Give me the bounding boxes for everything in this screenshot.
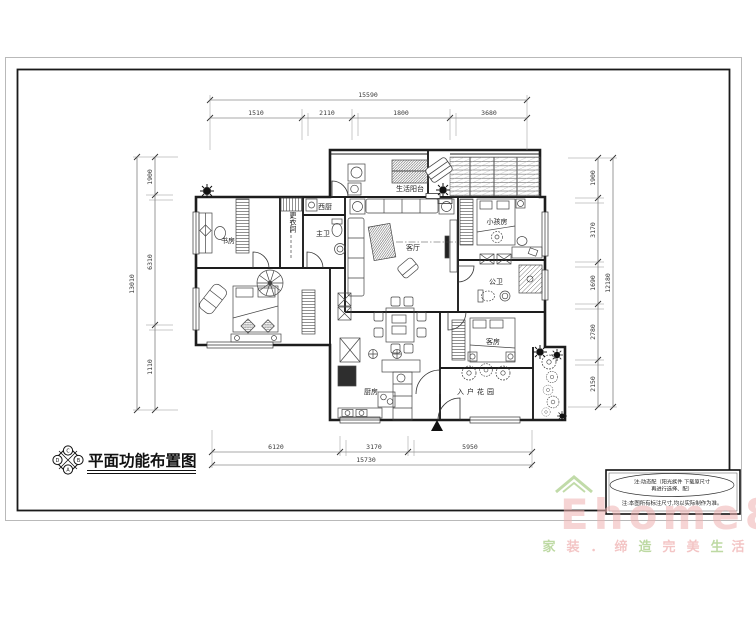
- guest-room: [452, 318, 515, 362]
- label-public-bath: 公卫: [489, 278, 503, 286]
- spiral-stair: [257, 270, 283, 296]
- svg-text:家: 家: [542, 539, 556, 555]
- label-living: 客厅: [406, 243, 420, 252]
- label-kids: 小孩房: [487, 217, 508, 226]
- dim-right-3: 2780: [589, 324, 597, 340]
- brand-tagline: 家 装 ． 缔 造 完 美 生 活: [542, 539, 744, 555]
- dim-right-total: 12180: [604, 273, 612, 293]
- dim-right-2: 1690: [589, 275, 597, 291]
- title-underline: [87, 471, 196, 474]
- compass-letter-right: B: [77, 458, 80, 464]
- title-block: C B A D 平面功能布置图: [53, 446, 197, 474]
- note-oval-line1: 注:动态配（阳光族件 下载原尺寸: [634, 478, 710, 486]
- dim-right-1: 3170: [589, 222, 597, 238]
- dim-bottom-1: 3170: [366, 443, 382, 451]
- label-guest: 客房: [486, 337, 500, 346]
- label-west-kitchen: 西厨: [318, 203, 332, 211]
- kids-room: [460, 199, 542, 264]
- master-bedroom: [197, 282, 315, 342]
- svg-text:．: ．: [590, 540, 603, 555]
- dim-top-3: 3680: [481, 109, 497, 117]
- svg-text:装: 装: [565, 539, 579, 555]
- page-title: 平面功能布置图: [88, 451, 197, 470]
- living-room: [348, 199, 457, 296]
- dim-top-1: 2110: [319, 109, 335, 117]
- label-cloak: 更衣间: [289, 212, 297, 234]
- svg-text:生: 生: [710, 539, 723, 555]
- dim-left-0: 1900: [146, 169, 154, 185]
- dim-top-2: 1800: [393, 109, 409, 117]
- svg-text:造: 造: [638, 539, 652, 555]
- dim-left-total: 13010: [128, 274, 136, 294]
- svg-text:缔: 缔: [614, 539, 627, 555]
- west-kitchen: [306, 199, 317, 211]
- brand-logo-text: Ehome8: [560, 490, 756, 539]
- public-bath: [478, 265, 542, 302]
- svg-text:活: 活: [731, 539, 744, 555]
- label-kitchen: 厨房: [364, 387, 378, 396]
- svg-text:完: 完: [662, 539, 675, 555]
- dim-right-0: 1900: [589, 170, 597, 186]
- svg-text:美: 美: [686, 539, 700, 555]
- dim-bottom-total: 15730: [356, 456, 376, 464]
- dim-left-2: 1110: [146, 359, 154, 375]
- dim-bottom-2: 5950: [462, 443, 478, 451]
- label-laundry-balcony: 生活阳台: [396, 184, 424, 193]
- compass-letter-left: D: [56, 458, 60, 464]
- terrace: [425, 157, 540, 197]
- dim-top-total: 15590: [358, 91, 378, 99]
- entry-garden: [462, 345, 567, 421]
- dim-left-1: 6310: [146, 254, 154, 270]
- floor-plan-svg: 书房 更衣间 西厨 主卫 客厅 生活阳台 小孩房 公卫 客房 厨房 入户花园 1…: [0, 0, 756, 630]
- dim-bottom-0: 6120: [268, 443, 284, 451]
- label-master-bath: 主卫: [316, 229, 330, 238]
- label-entry-garden: 入户花园: [457, 387, 497, 396]
- drawing-sheet: 书房 更衣间 西厨 主卫 客厅 生活阳台 小孩房 公卫 客房 厨房 入户花园 1…: [0, 0, 756, 630]
- dim-right-4: 2150: [589, 376, 597, 392]
- entrance-arrow: [431, 420, 443, 431]
- master-bath: [332, 219, 346, 255]
- label-study: 书房: [221, 236, 235, 245]
- dim-top-0: 1510: [248, 109, 264, 117]
